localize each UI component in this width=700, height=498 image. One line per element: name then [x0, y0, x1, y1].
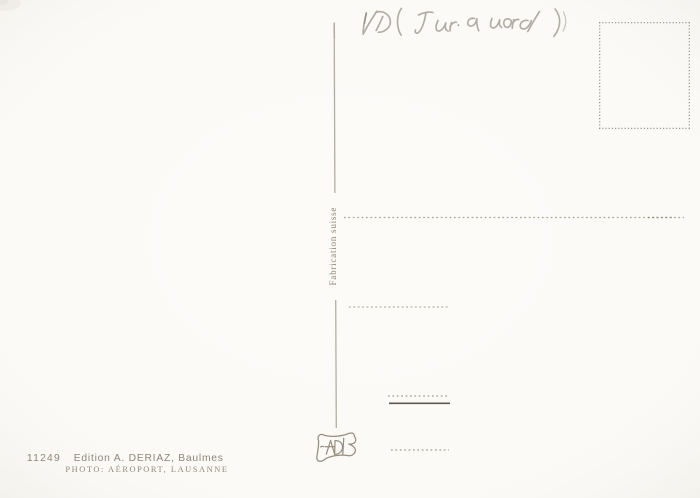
- svg-text:PHOTO: AÉROPORT, LAUSANNE: PHOTO: AÉROPORT, LAUSANNE: [65, 464, 228, 474]
- svg-text:Fabrication suisse: Fabrication suisse: [328, 207, 338, 286]
- svg-text:Edition A. DERIAZ, Baulmes: Edition A. DERIAZ, Baulmes: [74, 453, 224, 464]
- svg-text:11249: 11249: [27, 453, 61, 464]
